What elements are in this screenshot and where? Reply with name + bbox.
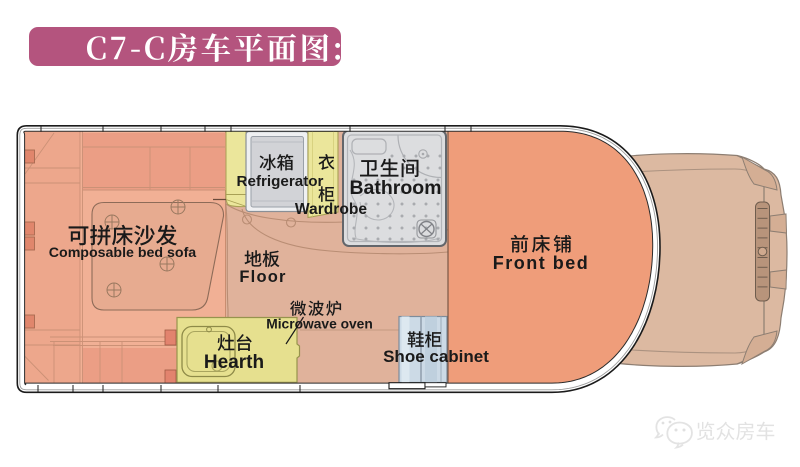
svg-text:Shoe cabinet: Shoe cabinet [383,347,489,366]
svg-text:Front bed: Front bed [493,253,590,273]
svg-text:Bathroom: Bathroom [349,177,441,199]
svg-text:Microwave oven: Microwave oven [266,317,373,332]
svg-text:Hearth: Hearth [204,352,264,373]
svg-text:Floor: Floor [239,268,286,286]
svg-text:Composable bed sofa: Composable bed sofa [49,245,197,261]
svg-text:Wardrobe: Wardrobe [295,201,368,218]
svg-text:Refrigerator: Refrigerator [237,173,324,190]
